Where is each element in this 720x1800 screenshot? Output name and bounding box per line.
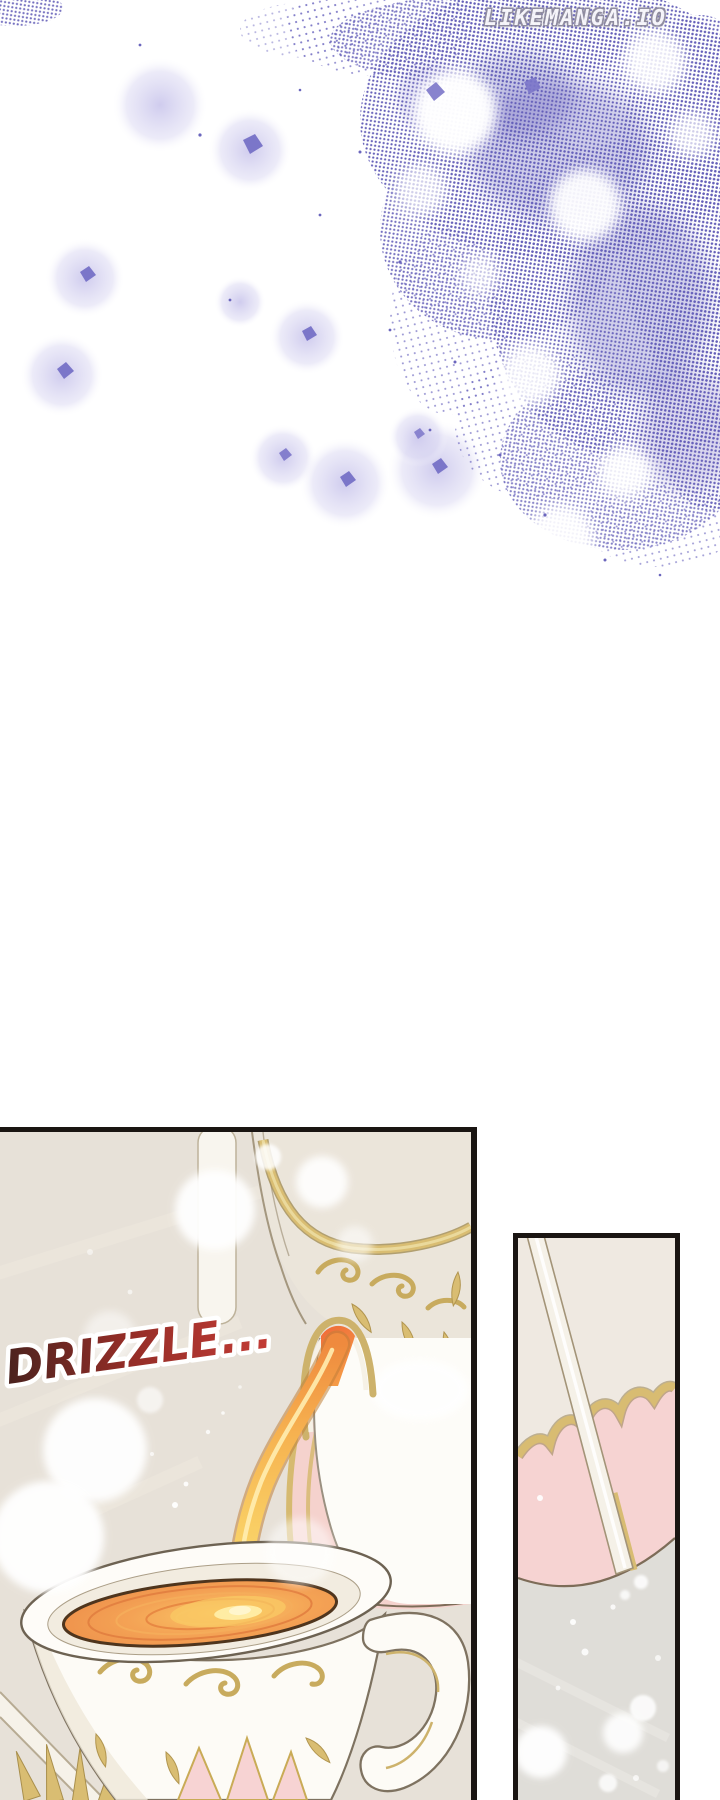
manga-page: LIKEMANGA.IO [0, 0, 720, 1800]
tea-pouring-illustration: DRIZZLE... [0, 1132, 471, 1800]
panel-tea-pouring: DRIZZLE... [0, 1127, 477, 1800]
panel-saucer-detail [513, 1233, 680, 1800]
saucer-detail-illustration [518, 1238, 675, 1800]
sparkle-dust-art [0, 0, 720, 590]
site-watermark: LIKEMANGA.IO [484, 6, 720, 31]
